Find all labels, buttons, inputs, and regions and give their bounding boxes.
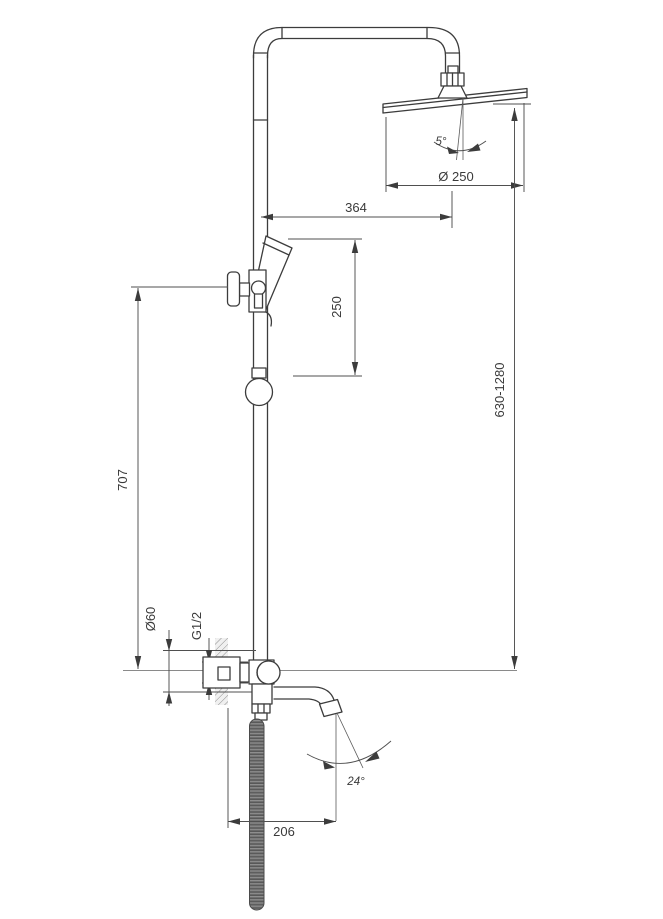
dim-arm-projection: 364 <box>261 191 452 228</box>
shower-arm-pipe <box>254 28 460 74</box>
escutcheon-diameter-label: Ø60 <box>143 607 158 632</box>
head-diameter-label: Ø 250 <box>438 169 473 184</box>
dim-height-range: 630-1280 <box>492 104 531 669</box>
dim-rail-height: 707 <box>115 287 228 669</box>
arm-projection-label: 364 <box>345 200 367 215</box>
riser-pipe <box>254 53 268 662</box>
spout-reach-label: 206 <box>273 824 295 839</box>
dim-spout-reach: 206 <box>228 708 336 839</box>
connection-thread-label: G1/2 <box>189 612 204 640</box>
dim-head-diameter: Ø 250 <box>386 103 524 192</box>
drawing-svg: 5° Ø 250 364 630-1280 <box>0 0 663 919</box>
head-tilt-angle-label: 5° <box>436 136 447 148</box>
hand-shower-holder <box>249 270 266 312</box>
height-range-label: 630-1280 <box>492 363 507 418</box>
shower-column-technical-drawing: 5° Ø 250 364 630-1280 <box>0 0 663 919</box>
dim-hand-shower-offset: 250 <box>288 239 362 376</box>
dim-spout-angle: 24° <box>307 713 391 821</box>
spout-angle-label: 24° <box>346 776 365 788</box>
tub-spout <box>274 687 342 717</box>
ball-joint <box>246 368 273 406</box>
rail-height-label: 707 <box>115 469 130 491</box>
hand-shower-offset-label: 250 <box>329 296 344 318</box>
shower-hose <box>250 719 265 910</box>
mixer-valve <box>203 657 280 720</box>
arm-connector-nut <box>438 66 467 98</box>
slider-knob <box>228 272 250 306</box>
